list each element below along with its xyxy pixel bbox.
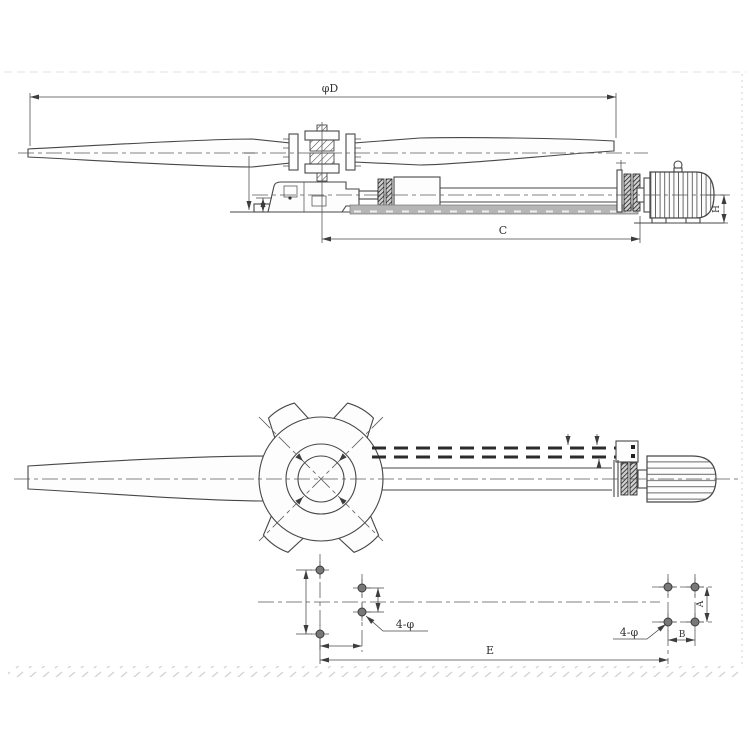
mid-pitch-dimension (366, 588, 384, 612)
anchor-hole (311, 561, 329, 579)
holes-callout-right: 4-φ (613, 624, 666, 639)
foundation-plan: 4-φ E A B 4-φ (258, 554, 712, 664)
gearbox-plug (288, 196, 291, 199)
motor-foot (686, 218, 700, 223)
beam-end-plate (616, 441, 638, 462)
dim-label-e: E (486, 644, 494, 657)
hub-flange-left (289, 134, 298, 170)
end-plate-bolt (631, 445, 635, 449)
holes-label-left: 4-φ (396, 618, 415, 631)
drawing-canvas: φD (0, 0, 750, 750)
pitch-b-dimension: B (668, 630, 695, 640)
shaft-tube-plan (382, 460, 647, 497)
anchor-hole (686, 613, 704, 631)
hub-flange-right (346, 134, 355, 170)
anchor-hole (659, 578, 677, 596)
dim-label-diameter: φD (322, 82, 339, 95)
gearbox-body (268, 182, 359, 212)
dim-label-c: C (499, 224, 507, 237)
end-plate-bolt (631, 454, 635, 458)
right-bearing-bracket (616, 160, 640, 212)
side-elevation-view: φD (18, 82, 730, 243)
fan-engineering-drawing: φD (0, 0, 750, 750)
beam-hidden-edges (372, 434, 638, 467)
motor-foot (652, 218, 666, 223)
holes-callout-left: 4-φ (366, 616, 428, 631)
anchor-hole (686, 578, 704, 596)
dim-label-h: H (712, 205, 722, 213)
anchor-hole (659, 613, 677, 631)
support-beam (350, 205, 638, 214)
span-e-dimension: E (320, 644, 668, 660)
holes-label-right: 4-φ (620, 626, 639, 639)
length-c-dimension: C (322, 216, 640, 243)
plan-view (14, 399, 738, 557)
motor-side-view (634, 161, 724, 223)
plan-left-blade (28, 456, 268, 501)
right-blade (354, 138, 614, 165)
coupling-disc (624, 174, 631, 211)
frame-bottom-perforation (8, 666, 744, 677)
pitch-a-dimension: A (696, 587, 707, 622)
dim-label-a: A (696, 600, 706, 608)
dim-label-b: B (679, 630, 686, 640)
offset-dimension (320, 640, 362, 664)
gearbox-left-foot (254, 204, 270, 212)
